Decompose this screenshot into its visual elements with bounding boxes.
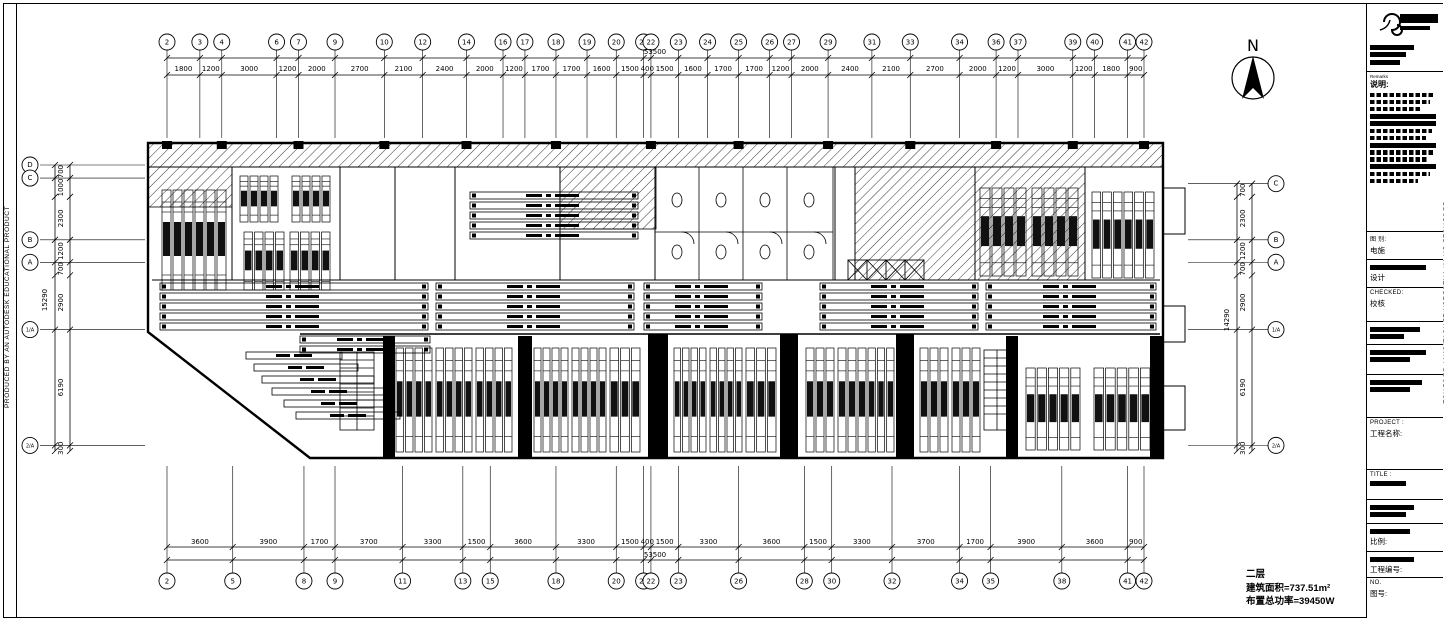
field-value: 工程名称: (1370, 428, 1440, 439)
redacted-line (1370, 60, 1400, 65)
redacted-line (1370, 529, 1410, 534)
svg-text:42: 42 (1140, 578, 1149, 586)
svg-text:3300: 3300 (853, 538, 871, 546)
notes-header: 说明: (1370, 79, 1440, 90)
svg-text:2100: 2100 (882, 65, 900, 73)
floor-area: 建筑面积=737.51m² (1246, 582, 1334, 596)
svg-text:8: 8 (302, 578, 306, 586)
svg-text:1/A: 1/A (1272, 328, 1281, 334)
svg-text:32: 32 (888, 578, 897, 586)
tb-row-signature-2 (1367, 375, 1443, 418)
field-value: 电施 (1370, 245, 1440, 256)
svg-text:1800: 1800 (1102, 65, 1120, 73)
svg-text:4: 4 (220, 39, 225, 47)
axes-bottom: 2589111315182021222326283032343538414236… (159, 466, 1152, 589)
svg-text:1800: 1800 (175, 65, 193, 73)
svg-text:3300: 3300 (700, 538, 718, 546)
svg-text:A: A (1274, 258, 1279, 266)
svg-text:3700: 3700 (360, 538, 378, 546)
svg-text:2000: 2000 (969, 65, 987, 73)
tb-row-title: TITLE : (1367, 470, 1443, 500)
cad-sheet: { "sheet": {"background": "#ffffff", "li… (0, 0, 1449, 623)
svg-text:1500: 1500 (809, 538, 827, 546)
floor-plan-canvas: 2346791012141617181920212223242526272931… (0, 0, 1449, 623)
svg-text:14290: 14290 (1223, 309, 1231, 331)
svg-text:1500: 1500 (468, 538, 486, 546)
svg-text:26: 26 (765, 39, 774, 47)
toilet-block (655, 167, 833, 280)
floor-name: 二层 (1246, 568, 1334, 582)
note-text-line (1370, 150, 1434, 155)
svg-text:18: 18 (552, 39, 561, 47)
svg-text:29: 29 (824, 39, 833, 47)
svg-text:1200: 1200 (505, 65, 523, 73)
svg-text:700: 700 (1239, 262, 1247, 275)
note-text-line (1370, 136, 1426, 141)
axes-right: CBA1/A2/A700230012007002900619030014290 (1188, 176, 1284, 455)
svg-text:26: 26 (734, 578, 743, 586)
svg-text:C: C (1274, 180, 1279, 188)
svg-text:17: 17 (520, 39, 529, 47)
redacted-line (1370, 557, 1414, 562)
tb-row-checked: CHECKED: 校核 (1367, 288, 1443, 322)
tb-row-approved (1367, 322, 1443, 345)
svg-text:20: 20 (612, 578, 621, 586)
svg-text:400: 400 (641, 65, 654, 73)
svg-text:2/A: 2/A (1272, 443, 1281, 449)
svg-text:700: 700 (1239, 184, 1247, 197)
svg-text:300: 300 (57, 442, 65, 455)
field-value: 比例: (1370, 536, 1440, 547)
svg-text:10: 10 (380, 39, 389, 47)
svg-text:2000: 2000 (308, 65, 326, 73)
svg-text:6190: 6190 (57, 379, 65, 397)
svg-text:9: 9 (333, 39, 337, 47)
svg-text:1500: 1500 (621, 538, 639, 546)
floor-summary: 二层 建筑面积=737.51m² 布置总功率=39450W (1246, 568, 1334, 609)
note-text-line (1370, 100, 1430, 105)
svg-text:3600: 3600 (763, 538, 781, 546)
redacted-line (1370, 164, 1436, 169)
field-value: 校核 (1370, 298, 1440, 309)
svg-text:1200: 1200 (57, 242, 65, 260)
svg-text:2400: 2400 (436, 65, 454, 73)
edu-stamp-left: PRODUCED BY AN AUTODESK EDUCATIONAL PROD… (3, 232, 13, 408)
svg-text:22: 22 (646, 39, 655, 47)
svg-text:B: B (28, 236, 33, 244)
svg-text:300: 300 (1239, 442, 1247, 455)
svg-text:24: 24 (703, 39, 712, 47)
tb-row-sheet-type: 图 别: 电施 (1367, 232, 1443, 260)
svg-text:1200: 1200 (772, 65, 790, 73)
svg-text:3600: 3600 (1086, 538, 1104, 546)
svg-text:2300: 2300 (57, 209, 65, 227)
svg-text:700: 700 (57, 262, 65, 275)
north-label: N (1247, 36, 1259, 55)
redacted-line (1370, 481, 1406, 486)
note-text-line (1370, 157, 1428, 162)
svg-text:2300: 2300 (1239, 209, 1247, 227)
svg-text:13: 13 (458, 578, 467, 586)
svg-text:3: 3 (198, 39, 202, 47)
field-label: TITLE : (1370, 472, 1440, 478)
svg-text:1/A: 1/A (26, 328, 35, 334)
svg-text:400: 400 (641, 538, 654, 546)
svg-text:1700: 1700 (532, 65, 550, 73)
tb-row-blank (1367, 500, 1443, 524)
svg-text:27: 27 (787, 39, 796, 47)
svg-text:37: 37 (1014, 39, 1023, 47)
field-label: NO. (1370, 580, 1440, 586)
svg-text:3900: 3900 (1017, 538, 1035, 546)
svg-text:15: 15 (486, 578, 495, 586)
svg-text:42: 42 (1140, 39, 1149, 47)
field-label: 图 别: (1370, 234, 1440, 243)
svg-text:34: 34 (955, 578, 964, 586)
axes-left: DCBA1/A2/A700100023001200700290061903001… (22, 157, 145, 455)
svg-text:40: 40 (1090, 39, 1099, 47)
svg-text:1200: 1200 (998, 65, 1016, 73)
svg-text:36: 36 (992, 39, 1001, 47)
svg-text:7: 7 (296, 39, 300, 47)
svg-text:A: A (28, 258, 33, 266)
redacted-line (1370, 505, 1414, 510)
svg-text:1600: 1600 (593, 65, 611, 73)
svg-text:30: 30 (827, 578, 836, 586)
redacted-line (1370, 334, 1404, 339)
note-text-line (1370, 172, 1430, 177)
svg-text:2700: 2700 (351, 65, 369, 73)
svg-text:1700: 1700 (745, 65, 763, 73)
note-text-line (1370, 129, 1432, 134)
svg-text:18: 18 (552, 578, 561, 586)
svg-text:5: 5 (231, 578, 235, 586)
svg-text:1700: 1700 (966, 538, 984, 546)
title-block-logo-cell (1367, 4, 1443, 72)
svg-text:1700: 1700 (563, 65, 581, 73)
svg-text:D: D (27, 161, 32, 169)
redacted-line (1370, 265, 1426, 270)
svg-text:1200: 1200 (1075, 65, 1093, 73)
svg-text:11: 11 (398, 578, 407, 586)
svg-text:3300: 3300 (577, 538, 595, 546)
svg-text:23: 23 (674, 39, 683, 47)
svg-text:12: 12 (418, 39, 427, 47)
svg-text:23: 23 (674, 578, 683, 586)
field-label: PROJECT : (1370, 420, 1440, 426)
title-block: Remarks 说明: 图 别: 电施 设计 CHECKED: 校核 (1366, 4, 1443, 618)
company-logo-icon (1370, 6, 1440, 40)
svg-text:31: 31 (867, 39, 876, 47)
svg-text:2: 2 (165, 39, 169, 47)
north-arrow: N (1232, 36, 1274, 99)
svg-text:2100: 2100 (395, 65, 413, 73)
tb-row-drawing-number: NO. 图号: (1367, 578, 1443, 619)
svg-text:3700: 3700 (917, 538, 935, 546)
svg-text:19: 19 (583, 39, 592, 47)
svg-text:34: 34 (955, 39, 964, 47)
svg-text:53500: 53500 (644, 48, 666, 56)
svg-text:28: 28 (800, 578, 809, 586)
redacted-line (1370, 114, 1436, 119)
svg-text:3000: 3000 (1036, 65, 1054, 73)
redacted-line (1370, 327, 1420, 332)
svg-text:25: 25 (734, 39, 743, 47)
redacted-line (1370, 350, 1426, 355)
redacted-line (1370, 357, 1410, 362)
note-text-line (1370, 179, 1418, 184)
redacted-line (1370, 45, 1414, 50)
svg-text:1200: 1200 (279, 65, 297, 73)
svg-text:2700: 2700 (926, 65, 944, 73)
svg-text:1500: 1500 (656, 65, 674, 73)
svg-text:15290: 15290 (41, 289, 49, 311)
svg-text:1700: 1700 (311, 538, 329, 546)
svg-text:2900: 2900 (57, 294, 65, 312)
svg-text:53500: 53500 (644, 551, 666, 559)
svg-text:2: 2 (165, 578, 169, 586)
field-label: CHECKED: (1370, 290, 1440, 296)
svg-text:C: C (28, 174, 33, 182)
svg-text:1000: 1000 (57, 179, 65, 197)
svg-text:35: 35 (986, 578, 995, 586)
svg-text:3300: 3300 (424, 538, 442, 546)
svg-text:1600: 1600 (684, 65, 702, 73)
redacted-line (1370, 143, 1436, 148)
svg-text:3000: 3000 (240, 65, 258, 73)
svg-text:1500: 1500 (621, 65, 639, 73)
svg-text:2000: 2000 (476, 65, 494, 73)
svg-text:41: 41 (1123, 39, 1132, 47)
svg-text:1500: 1500 (656, 538, 674, 546)
svg-text:2/A: 2/A (26, 443, 35, 449)
svg-text:1700: 1700 (714, 65, 732, 73)
tb-row-scale: 比例: (1367, 524, 1443, 552)
tb-row-job-number: 工程编号: (1367, 552, 1443, 578)
redacted-line (1370, 52, 1406, 57)
redacted-line (1370, 380, 1422, 385)
note-text-line (1370, 93, 1434, 98)
redacted-line (1370, 387, 1410, 392)
svg-text:22: 22 (646, 578, 655, 586)
svg-text:16: 16 (499, 39, 508, 47)
total-power: 布置总功率=39450W (1246, 595, 1334, 609)
svg-text:33: 33 (906, 39, 915, 47)
svg-text:39: 39 (1068, 39, 1077, 47)
note-text-line (1370, 107, 1422, 112)
svg-text:38: 38 (1057, 578, 1066, 586)
svg-text:6: 6 (274, 39, 279, 47)
svg-text:20: 20 (612, 39, 621, 47)
tb-row-project: PROJECT : 工程名称: (1367, 418, 1443, 470)
svg-text:3600: 3600 (514, 538, 532, 546)
tb-row-design: 设计 (1367, 260, 1443, 288)
svg-text:1200: 1200 (202, 65, 220, 73)
svg-text:900: 900 (1129, 65, 1142, 73)
svg-text:3900: 3900 (259, 538, 277, 546)
svg-text:9: 9 (333, 578, 337, 586)
redacted-line (1370, 512, 1406, 517)
axes-top: 2346791012141617181920212223242526272931… (159, 34, 1152, 138)
svg-text:2000: 2000 (801, 65, 819, 73)
field-value: 设计 (1370, 272, 1440, 283)
svg-text:6190: 6190 (1239, 379, 1247, 397)
svg-text:3600: 3600 (191, 538, 209, 546)
title-block-notes-cell: Remarks 说明: (1367, 72, 1443, 232)
svg-text:B: B (1274, 236, 1279, 244)
svg-text:2900: 2900 (1239, 294, 1247, 312)
field-value: 图号: (1370, 588, 1440, 599)
svg-text:700: 700 (57, 165, 65, 178)
svg-text:900: 900 (1129, 538, 1142, 546)
svg-text:41: 41 (1123, 578, 1132, 586)
redacted-line (1370, 121, 1436, 126)
field-value: 工程编号: (1370, 564, 1440, 575)
tb-row-signature-1 (1367, 345, 1443, 375)
svg-text:2400: 2400 (841, 65, 859, 73)
svg-text:1200: 1200 (1239, 242, 1247, 260)
svg-text:14: 14 (462, 39, 471, 47)
right-bump-rooms (1163, 188, 1185, 430)
